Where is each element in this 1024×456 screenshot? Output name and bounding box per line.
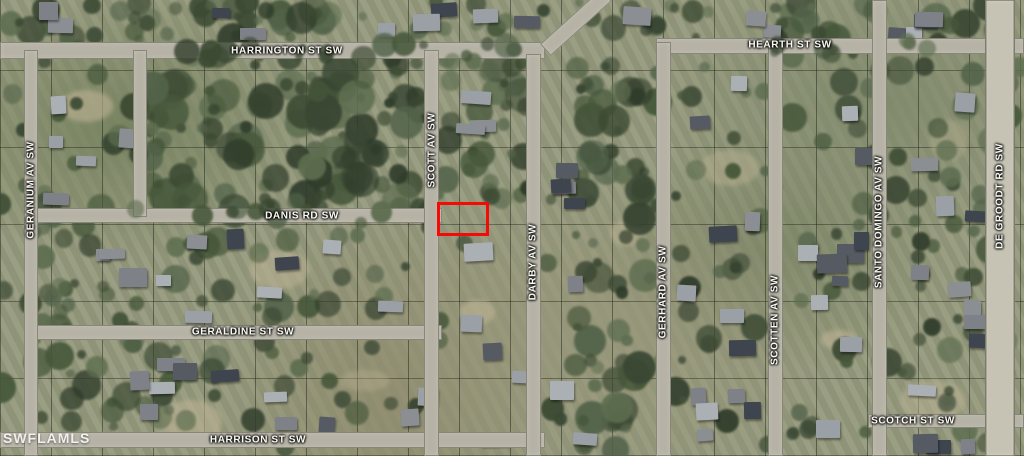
- tree: [461, 50, 472, 61]
- tree: [192, 205, 213, 226]
- tree: [899, 33, 915, 49]
- street-label-scotch: SCOTCH ST SW: [871, 416, 955, 427]
- street-label-geraldine: GERALDINE ST SW: [192, 327, 294, 338]
- street-label-scott: SCOTT AV SW: [427, 113, 438, 188]
- street-label-harrington: HARRINGTON ST SW: [231, 46, 343, 57]
- street-label-harrison: HARRISON ST SW: [210, 435, 306, 446]
- street-label-scotten: SCOTTEN AV SW: [770, 275, 781, 365]
- street-label-santo-domingo: SANTO DOMINGO AV SW: [874, 156, 885, 288]
- tree: [355, 217, 367, 229]
- tree: [351, 46, 376, 71]
- tree: [444, 53, 461, 70]
- tree: [371, 201, 392, 222]
- aerial-map[interactable]: HARRINGTON ST SW HEARTH ST SW DANIS RD S…: [0, 0, 1024, 456]
- street-label-hearth: HEARTH ST SW: [748, 40, 831, 51]
- tree: [918, 40, 935, 57]
- street-label-danis: DANIS RD SW: [265, 211, 339, 222]
- street-label-de-groodt: DE GROODT RD SW: [995, 143, 1006, 249]
- tree: [392, 32, 417, 57]
- tree: [174, 39, 200, 65]
- tree: [226, 206, 238, 218]
- tree: [481, 37, 494, 50]
- tree-canopy-overhang: [0, 0, 1024, 456]
- street-label-geranium: GERANIUM AV SW: [26, 141, 37, 238]
- street-label-gerhard: GERHARD AV SW: [658, 246, 669, 339]
- tree: [494, 33, 519, 58]
- tree: [207, 46, 229, 68]
- mls-watermark: SWFLAMLS: [3, 430, 90, 446]
- tree: [127, 200, 144, 217]
- subject-parcel-highlight: [437, 202, 489, 236]
- street-label-darby: DARBY AV SW: [528, 224, 539, 300]
- tree: [419, 41, 427, 49]
